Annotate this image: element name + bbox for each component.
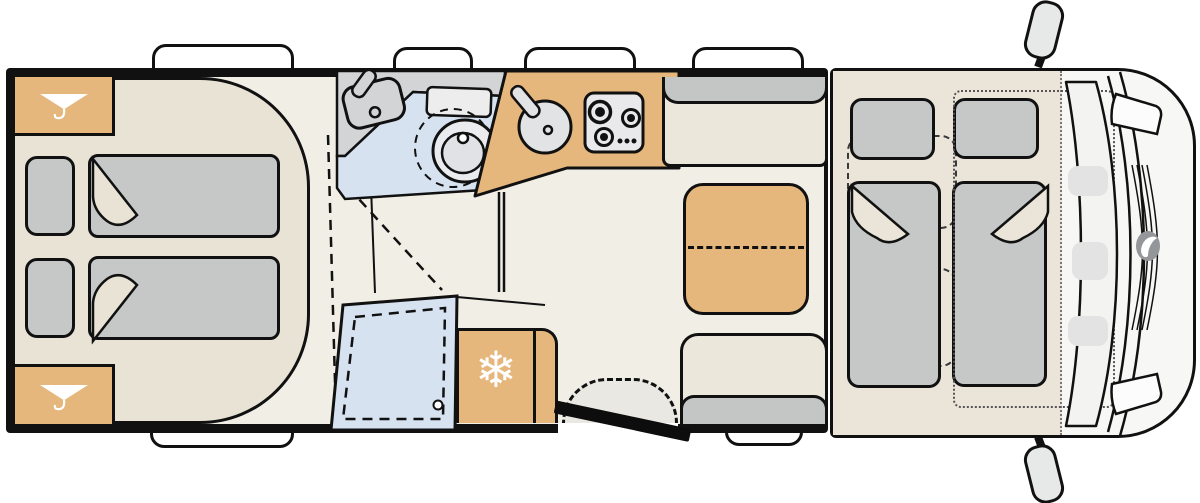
door-leaf [457,297,545,305]
motorhome-floorplan: ❄ [0,0,1200,503]
bench-headrest-rear [680,395,828,424]
refrigerator: ❄ [456,328,558,423]
drop-bed-pillow-left [850,98,935,160]
fridge-door-line [533,331,536,423]
toilet-flush-button [458,133,468,143]
bench-headrest-front [662,77,828,104]
duvet-fold [91,157,283,241]
rear-bed-mattress-upper [88,154,280,238]
duvet-fold [850,184,944,391]
burner-center [627,114,635,122]
drop-bed-mattress-left [847,181,941,388]
dashboard-shape [1068,166,1108,196]
shower-drain [434,401,443,410]
rear-bed-mattress-lower [88,256,280,340]
side-mirror-bottom [1005,434,1077,503]
rear-bed-pillow-upper [25,156,75,236]
hob-knob [632,139,637,144]
clothes-hanger-icon [37,91,91,121]
shower [328,293,468,433]
snowflake-icon: ❄ [459,345,533,395]
side-mirror-top [1005,0,1077,72]
clothes-hanger-icon [37,382,91,412]
wardrobe-top [15,77,115,136]
table-extension-line [688,246,804,249]
hob-knob [625,139,630,144]
duvet-fold [91,259,283,343]
kitchen-counter [475,71,679,196]
dashboard-shape [1072,242,1108,280]
burner-center [600,133,608,141]
hob-knob [618,139,623,144]
kitchen [473,68,682,198]
dinette-table [683,183,809,315]
cab-front [1062,70,1196,438]
wardrobe-bottom [15,364,115,424]
dashboard-shape [1068,316,1108,346]
burner-center [595,107,605,117]
rear-bed-pillow-lower [25,258,75,338]
